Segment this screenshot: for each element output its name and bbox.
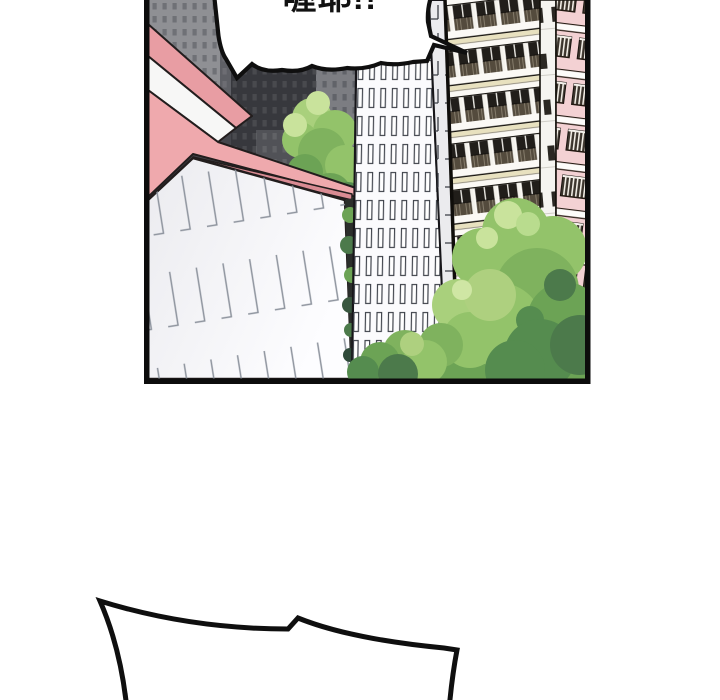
comic-page: 喔耶!!	[0, 0, 720, 700]
panel-artwork: 喔耶!!	[146, 0, 625, 400]
speech-bubble-text: 喔耶!!	[283, 0, 378, 17]
